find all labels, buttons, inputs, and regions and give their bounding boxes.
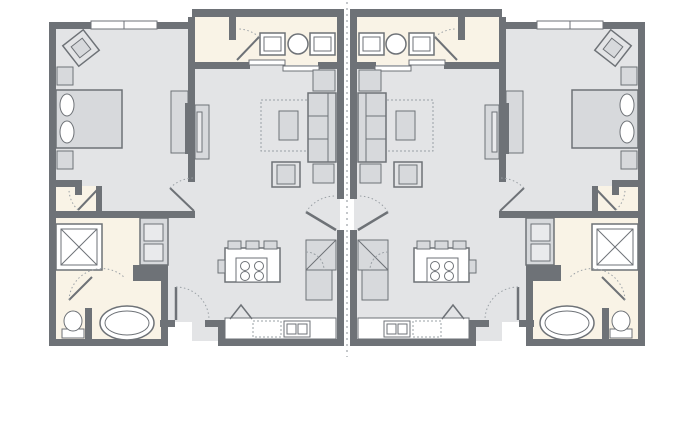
burner-4-right (431, 272, 440, 281)
burner-1-right (445, 262, 454, 271)
bar-stool-1-right (453, 241, 466, 249)
wall-vanity-top-left (192, 9, 344, 17)
bedroom-side-table-right (621, 67, 637, 85)
sliding-door-panel-1-left (249, 60, 285, 65)
tv-bedroom-right (504, 103, 509, 154)
vanity-sink-right-basin-left (314, 37, 331, 51)
bedroom-nightstand-right (621, 151, 637, 169)
wall-bathroom-right-left (161, 272, 168, 346)
unit-left (49, 9, 344, 346)
tv-bedroom-left (185, 103, 190, 154)
bar-stool-3-left (264, 241, 277, 249)
burner-3-right (445, 272, 454, 281)
island-handle-right (469, 260, 476, 273)
bed-pillow-1-left (60, 94, 74, 116)
wall-bathroom-bottom-left (49, 339, 168, 346)
coffee-table-right (396, 111, 415, 140)
armchair-cushion-left (277, 165, 295, 184)
bar-stool-3-right (417, 241, 430, 249)
washer-right (531, 224, 550, 241)
dishwasher-left (253, 321, 281, 337)
burner-4-left (255, 272, 264, 281)
wall-toilet-partition-left (85, 308, 92, 339)
burner-1-left (241, 262, 250, 271)
sink-basin-2-right (387, 324, 396, 334)
wall-closet-stub-left (75, 180, 82, 195)
armchair-cushion-right (399, 165, 417, 184)
wall-center-lower-left (337, 230, 344, 346)
wall-kitchen-bottom-left (218, 339, 344, 346)
wall-center-lower-right (350, 230, 357, 346)
dryer-left (144, 244, 163, 261)
wall-laundry-bottom-right (526, 265, 561, 281)
bar-stool-2-left (246, 241, 259, 249)
wall-kitchen-bottom-right (350, 339, 476, 346)
bar-stool-1-left (228, 241, 241, 249)
wall-bathroom-right-right (526, 272, 533, 346)
window-bedroom-2-right (537, 21, 570, 29)
sink-basin-1-left (287, 324, 296, 334)
wall-vanity-partition-left (229, 17, 236, 40)
vanity-sink-right-basin-right (363, 37, 380, 51)
end-table-top-left (313, 70, 335, 91)
sink-basin-2-left (298, 324, 307, 334)
vanity-sink-left-basin-left (264, 37, 281, 51)
unit-right (350, 9, 645, 346)
wall-vanity-bottom-left-right (444, 62, 502, 69)
wall-toilet-partition-right (602, 308, 609, 339)
toilet-bowl-right (612, 311, 630, 331)
tv-living-right (492, 112, 497, 152)
wall-bedroom-right-right (499, 17, 506, 182)
bar-stool-2-right (435, 241, 448, 249)
floorplan (0, 0, 697, 445)
window-bedroom-1-right (570, 21, 603, 29)
wall-laundry-bottom-left (133, 265, 168, 281)
wall-vanity-bottom-left-left (192, 62, 250, 69)
coffee-table-left (279, 111, 298, 140)
wall-bedroom-right-left (188, 17, 195, 182)
pantry-cabinet-left (306, 270, 332, 300)
vanity-round-basin-left (288, 34, 308, 54)
wall-center-upper-left (337, 9, 344, 199)
end-table-bottom-left (313, 164, 334, 183)
bed-pillow-2-left (60, 121, 74, 143)
dishwasher-right (413, 321, 441, 337)
island-handle-left (218, 260, 225, 273)
washer-left (144, 224, 163, 241)
bed-pillow-1-right (620, 94, 634, 116)
bedroom-nightstand-left (57, 151, 73, 169)
sink-basin-1-right (398, 324, 407, 334)
vanity-sink-left-basin-right (413, 37, 430, 51)
vanity-round-basin-right (386, 34, 406, 54)
end-table-bottom-right (360, 164, 381, 183)
window-bedroom-2-left (124, 21, 157, 29)
wall-center-upper-right (350, 9, 357, 199)
end-table-top-right (359, 70, 381, 91)
window-bedroom-1-left (91, 21, 124, 29)
bed-pillow-2-right (620, 121, 634, 143)
burner-2-left (255, 262, 264, 271)
wall-bedroom-bottom-right (499, 211, 645, 218)
sofa-left (308, 93, 336, 162)
wall-bedroom-bottom-left (49, 211, 195, 218)
tv-living-left (197, 112, 202, 152)
bedroom-side-table-left (57, 67, 73, 85)
toilet-bowl-left (64, 311, 82, 331)
burner-2-right (431, 262, 440, 271)
wall-bathroom-bottom-right (526, 339, 645, 346)
burner-3-left (241, 272, 250, 281)
wall-closet-stub-right (612, 180, 619, 195)
pantry-cabinet-right (362, 270, 388, 300)
floorplan-svg (0, 0, 697, 445)
sliding-door-panel-1-right (409, 60, 445, 65)
wall-vanity-top-right (350, 9, 502, 17)
sofa-right (358, 93, 386, 162)
wall-vanity-partition-right (458, 17, 465, 40)
dryer-right (531, 244, 550, 261)
